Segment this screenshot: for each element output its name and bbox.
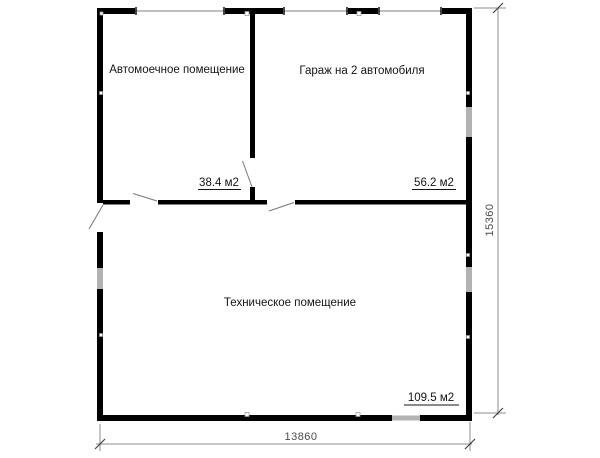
dimension-right: 15360 [474,3,506,418]
door-swings [89,161,294,229]
wall-segment-bottom [97,415,392,421]
dimension-height-label: 15360 [484,203,496,236]
door-swing-carwash-garage [243,161,253,187]
window-right-tech [466,267,472,292]
floor-plan-page: 15360 13860 Автомоечное помещение Гараж … [0,0,600,458]
wall-notch [100,12,103,15]
room-label-technical: Техническое помещение [224,297,356,309]
interior-wall-horizontal [295,200,466,205]
wall-notch [356,413,360,417]
room-label-garage: Гараж на 2 автомобиля [299,65,424,77]
interior-walls [103,14,466,205]
wall-notch [100,334,103,337]
area-label-carwash: 38.4 м2 [199,177,239,189]
dimension-width-label: 13860 [284,431,317,443]
room-labels: Автомоечное помещение Гараж на 2 автомоб… [109,64,454,404]
window-bottom-wall [392,416,420,421]
wall-segment-right [466,292,472,421]
area-label-garage: 56.2 м2 [414,177,454,189]
wall-segment-left [97,289,103,421]
interior-wall-horizontal [103,200,130,205]
door-swing-carwash-tech [133,194,157,202]
wall-segment-top [225,8,283,14]
room-label-carwash: Автомоечное помещение [109,64,245,76]
windows [97,107,472,421]
window-right-garage [466,107,472,137]
area-label-technical: 109.5 м2 [408,392,454,404]
door-swing-entrance-left [89,205,103,229]
floor-plan-drawing: 15360 13860 Автомоечное помещение Гараж … [0,0,600,458]
wall-segment-right [466,137,472,267]
wall-notch [467,254,470,257]
wall-notch [245,12,249,16]
wall-notch [467,92,470,95]
interior-wall-vertical [250,14,255,158]
wall-notch [100,92,103,95]
wall-notch [357,12,361,16]
wall-notch [467,336,470,339]
interior-wall-horizontal [158,200,267,205]
wall-segment-left [97,8,103,203]
window-left-wall [97,268,103,289]
wall-segment-bottom [420,415,472,421]
wall-segment-left [97,232,103,268]
wall-notch [245,413,249,417]
wall-segment-top [348,8,378,14]
door-swing-garage-tech [269,203,294,212]
dimension-bottom: 13860 [95,422,475,451]
